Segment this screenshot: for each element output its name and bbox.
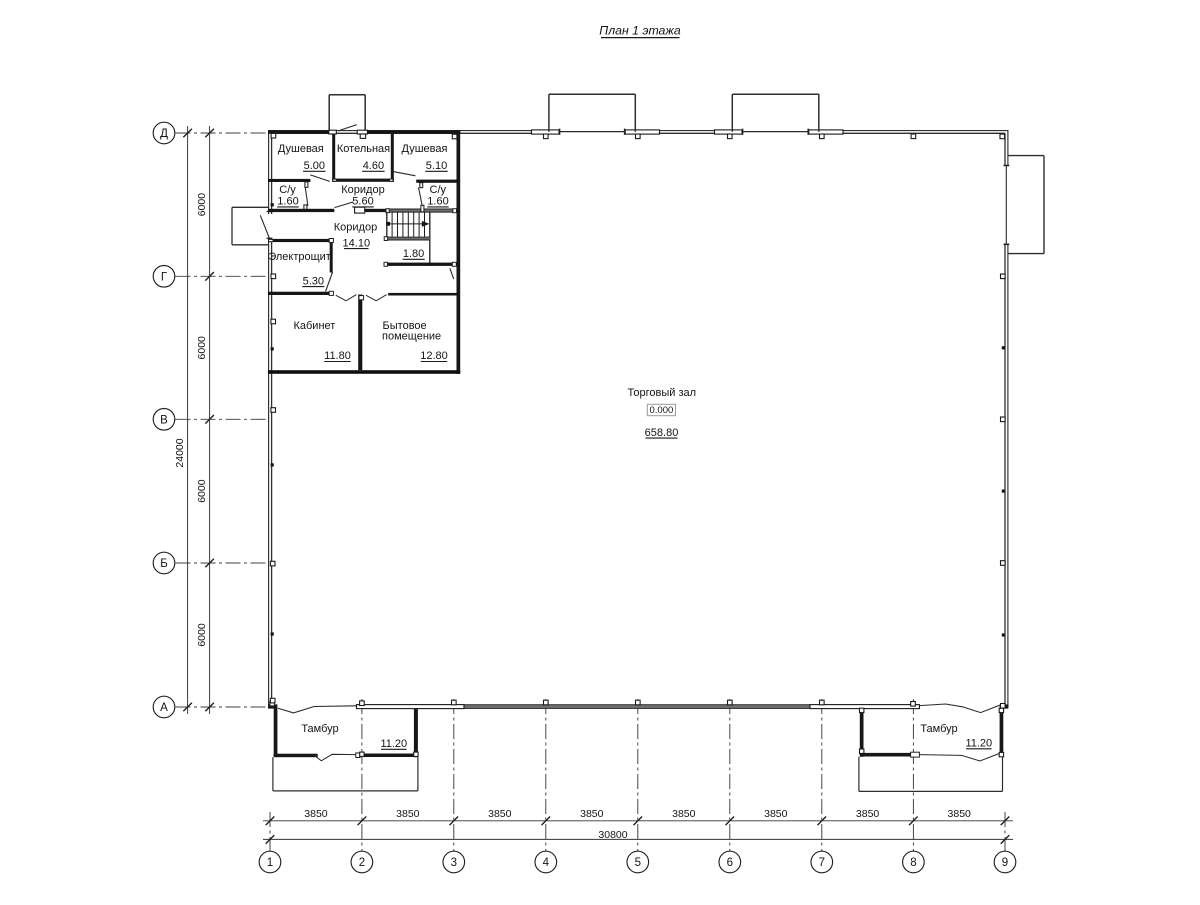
svg-text:Кабинет: Кабинет [293,320,335,332]
svg-text:24000: 24000 [174,438,186,467]
svg-text:11.20: 11.20 [380,738,407,750]
svg-text:12.80: 12.80 [420,350,448,362]
svg-text:План 1 этажа: План 1 этажа [599,24,681,38]
svg-text:Г: Г [161,271,168,283]
svg-text:3850: 3850 [488,808,512,820]
svg-text:Д: Д [160,128,168,140]
svg-text:4: 4 [543,857,550,869]
svg-text:11.80: 11.80 [324,350,351,362]
svg-text:5.30: 5.30 [303,275,324,287]
svg-text:3: 3 [451,857,457,869]
svg-text:5.00: 5.00 [304,160,325,172]
svg-text:3850: 3850 [948,808,972,820]
svg-text:8: 8 [910,857,916,869]
svg-text:1.80: 1.80 [403,248,424,260]
svg-text:В: В [160,414,168,426]
svg-text:1: 1 [267,857,273,869]
svg-text:С/у: С/у [430,184,447,196]
svg-text:Коридор: Коридор [341,184,384,196]
svg-text:6000: 6000 [196,623,208,647]
svg-text:Душевая: Душевая [278,143,324,155]
svg-text:5: 5 [635,857,641,869]
svg-text:11.20: 11.20 [965,738,992,750]
svg-text:6000: 6000 [196,193,208,217]
svg-text:С/у: С/у [279,184,296,196]
svg-text:658.80: 658.80 [645,427,679,439]
svg-text:Б: Б [160,558,168,570]
svg-text:3850: 3850 [856,808,880,820]
svg-text:3850: 3850 [764,808,788,820]
svg-text:А: А [160,702,168,714]
svg-text:3850: 3850 [396,808,420,820]
svg-text:14.10: 14.10 [343,237,371,249]
svg-text:9: 9 [1002,857,1008,869]
svg-text:5.10: 5.10 [426,160,447,172]
svg-text:Торговый зал: Торговый зал [628,387,697,399]
svg-text:30800: 30800 [598,829,627,841]
svg-text:помещение: помещение [382,331,441,343]
svg-text:5.60: 5.60 [352,196,373,208]
svg-text:0.000: 0.000 [650,405,674,416]
svg-text:1.60: 1.60 [277,196,298,208]
svg-text:Котельная: Котельная [337,143,390,155]
svg-text:Тамбур: Тамбур [920,723,957,735]
svg-text:3850: 3850 [672,808,696,820]
svg-text:3850: 3850 [580,808,604,820]
svg-text:6000: 6000 [196,336,208,360]
svg-text:Тамбур: Тамбур [301,723,338,735]
svg-text:Душевая: Душевая [402,143,448,155]
svg-text:3850: 3850 [304,808,328,820]
svg-text:Электрощит.: Электрощит. [268,251,332,263]
svg-text:2: 2 [359,857,365,869]
svg-text:Коридор: Коридор [334,221,377,233]
svg-text:6000: 6000 [196,479,208,503]
svg-text:4.60: 4.60 [363,160,384,172]
svg-text:7: 7 [819,857,825,869]
svg-text:1.60: 1.60 [427,196,448,208]
svg-text:6: 6 [727,857,733,869]
